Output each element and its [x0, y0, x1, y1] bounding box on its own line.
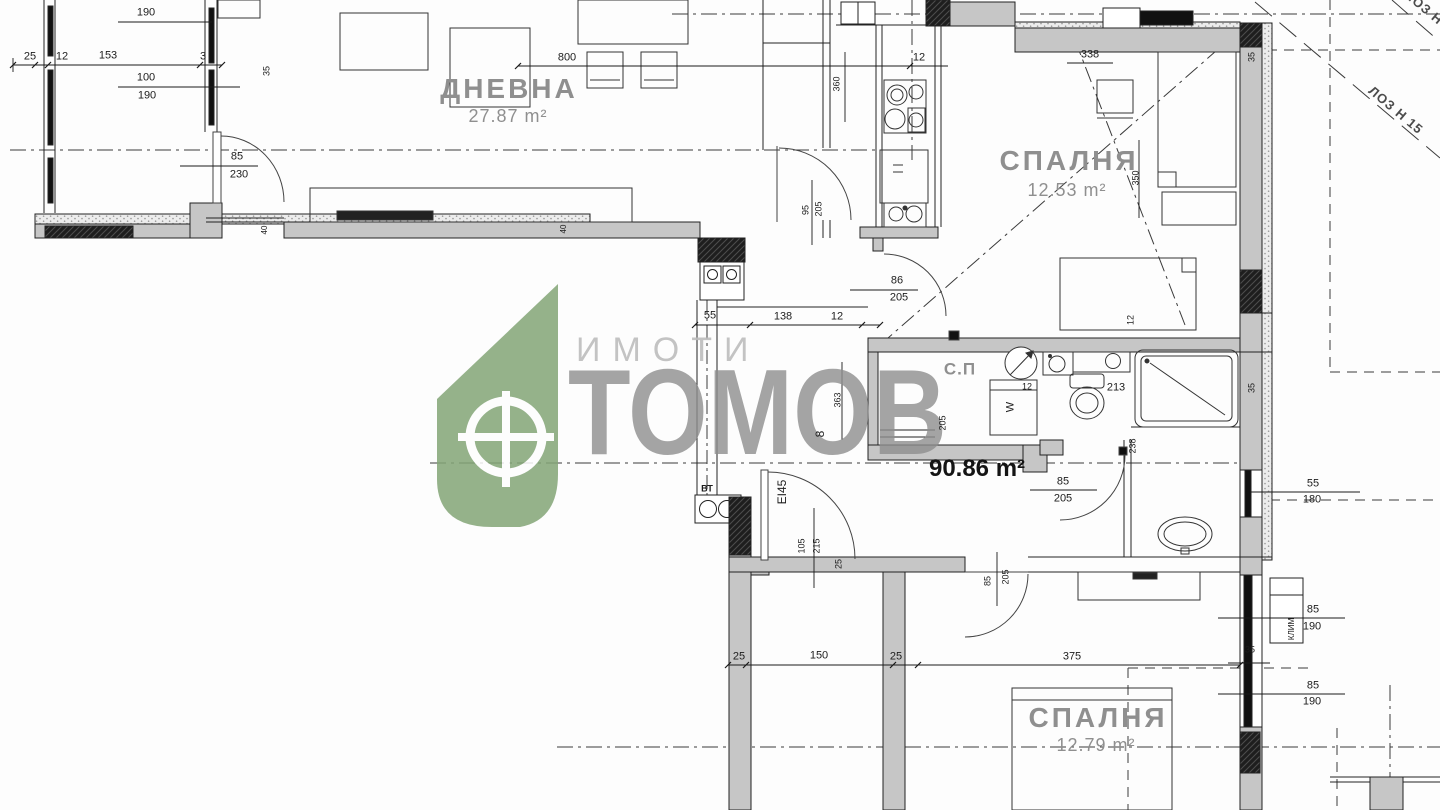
total-area-label: 90.86 m²: [929, 457, 1025, 481]
room-area-bedroom-top: 12.53 m²: [1027, 181, 1106, 199]
nightstand: [1097, 80, 1133, 118]
dim-label: 375: [1063, 652, 1081, 663]
dim-label: 85: [1307, 681, 1319, 692]
bed-1: [1158, 52, 1236, 225]
dim-label: 25: [890, 652, 902, 663]
dim-label: 180: [1303, 495, 1321, 506]
dim-label: 85: [1307, 605, 1319, 616]
room-label-closet: С.П: [944, 361, 976, 378]
dim-label: 12: [831, 312, 843, 323]
dim-label: 12: [1127, 315, 1136, 325]
dim-label: 95: [802, 205, 811, 215]
dim-label: 85: [984, 576, 993, 586]
dim-label: 25: [24, 52, 36, 63]
room-area-bedroom-bottom: 12.79 m²: [1056, 736, 1135, 754]
dim-label: 800: [558, 53, 576, 64]
room-label-living: ДНЕВНА: [440, 75, 578, 103]
dim-label: 138: [774, 312, 792, 323]
dim-label: 190: [1303, 622, 1321, 633]
window-west-2: [205, 0, 217, 132]
room-area-living: 27.87 m²: [468, 107, 547, 125]
dim-label: 213: [1107, 383, 1125, 394]
dim-label: 100: [137, 73, 155, 84]
dim-label: 153: [99, 51, 117, 62]
dim-label: 205: [890, 293, 908, 304]
dim-label: 85: [231, 152, 243, 163]
door-living: [213, 132, 284, 203]
dim-label: 190: [138, 91, 156, 102]
bath-sink: [1043, 352, 1073, 375]
wardrobe: [340, 13, 428, 70]
dim-label: 35: [263, 66, 272, 76]
ac-label: КЛИМ: [1288, 618, 1296, 640]
dim-label: 205: [815, 201, 824, 216]
dim-label: 12: [56, 52, 68, 63]
wall-bedroom1-north: [1015, 8, 1240, 52]
dim-label: 205: [939, 415, 948, 430]
dining-table: [578, 0, 688, 44]
dim-label: 205: [1002, 569, 1011, 584]
dim-label: 150: [810, 651, 828, 662]
dim-label: 35: [1248, 383, 1257, 393]
brand-word-tomov: ТОМОВ: [568, 356, 947, 468]
dim-label: 40: [560, 225, 568, 234]
door-bath: [1060, 447, 1127, 520]
shaft-label: 8: [814, 431, 826, 438]
vanity-sink: [1158, 517, 1212, 554]
dim-label: 86: [891, 276, 903, 287]
dim-label: 350: [1132, 170, 1141, 185]
wall-east: [1240, 23, 1272, 810]
window-west: [44, 0, 55, 213]
dim-label: 190: [1303, 697, 1321, 708]
dim-label: 25: [835, 559, 844, 569]
vt-label: ВТ: [701, 485, 713, 494]
room-label-bedroom-bottom: СПАЛНЯ: [1029, 704, 1168, 732]
door-bedroom2: [965, 572, 1028, 637]
dim-label: 35: [1248, 52, 1257, 62]
kitchen-sink: [884, 203, 926, 227]
dim-label: 215: [813, 538, 822, 553]
dim-label: 338: [1081, 50, 1099, 61]
shower: [1135, 350, 1238, 427]
dim-label: 190: [137, 8, 155, 19]
dim-label: 230: [230, 170, 248, 181]
dim-label: 205: [1054, 494, 1072, 505]
dim-label: 12: [913, 53, 925, 64]
chair: [587, 52, 623, 88]
dim-label: 55: [704, 311, 716, 322]
dim-label: 360: [833, 76, 842, 91]
sofa-seat: [337, 211, 433, 220]
bath-cabinet: [1073, 352, 1130, 372]
wardrobe-2: [1078, 572, 1200, 600]
floorplan-page: ИМОТИ ТОМОВ ДНЕВНА 27.87 m² СПАЛНЯ 12.53…: [0, 0, 1440, 810]
dim-label: 238: [1129, 438, 1138, 453]
fridge: [880, 150, 928, 203]
brand-house-icon: [432, 276, 564, 532]
washer-label: W: [1006, 402, 1017, 412]
room-label-bedroom-top: СПАЛНЯ: [1000, 147, 1139, 175]
dim-label: 25: [733, 652, 745, 663]
dim-label: 3: [200, 52, 206, 63]
wall-bedroom2: [729, 557, 1240, 810]
dim-label: 12: [1022, 383, 1032, 392]
dim-label: 85: [1057, 477, 1069, 488]
dim-label: 35: [1245, 646, 1255, 655]
dim-label: 105: [798, 538, 807, 553]
toilet: [1070, 374, 1104, 419]
stove: [884, 80, 926, 133]
vent-fan: [1005, 347, 1037, 379]
door-rating-label: EI45: [776, 480, 788, 505]
dim-label: 363: [834, 392, 843, 407]
cabinet: [218, 0, 260, 18]
chair: [641, 52, 677, 88]
dim-label: 55: [1307, 479, 1319, 490]
dim-label: 40: [261, 226, 269, 235]
